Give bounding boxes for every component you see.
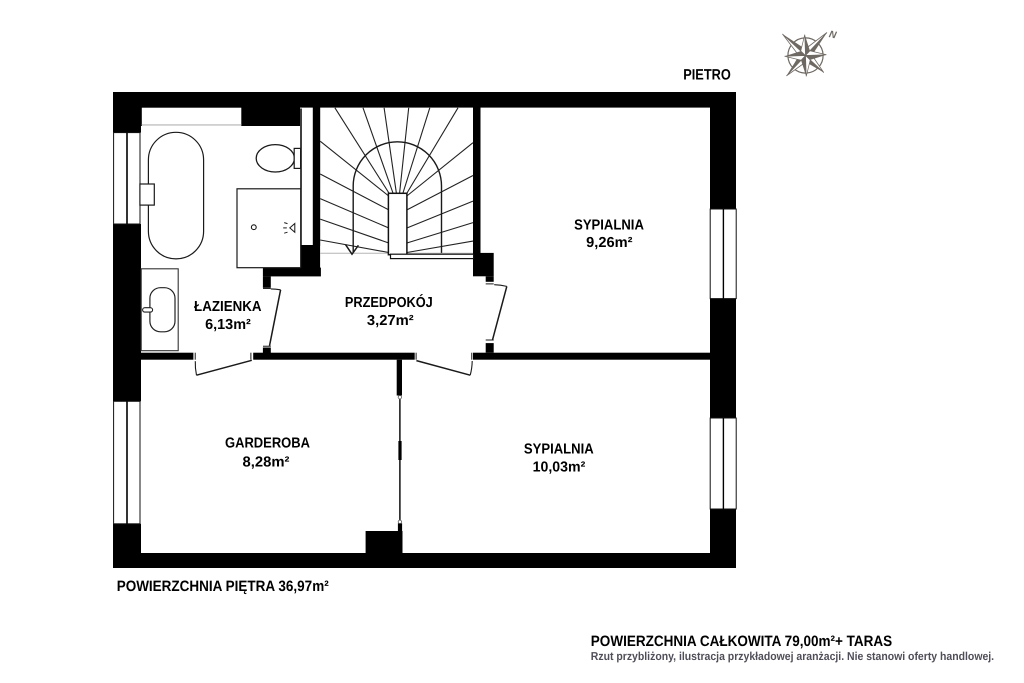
svg-text:8,28m²: 8,28m² <box>243 455 290 471</box>
svg-text:POWIERZCHNIA PIĘTRA 36,97m²: POWIERZCHNIA PIĘTRA 36,97m² <box>117 578 329 595</box>
svg-text:Rzut przybliżony, ilustracja p: Rzut przybliżony, ilustracja przykładowe… <box>591 651 994 663</box>
svg-text:PIETRO: PIETRO <box>683 67 731 84</box>
svg-text:POWIERZCHNIA CAŁKOWITA 79,00m²: POWIERZCHNIA CAŁKOWITA 79,00m²+ TARAS <box>591 633 892 650</box>
svg-text:N: N <box>828 29 838 41</box>
svg-text:9,26m²: 9,26m² <box>586 235 632 251</box>
svg-text:GARDEROBA: GARDEROBA <box>225 436 310 452</box>
svg-text:PRZEDPOKÓJ: PRZEDPOKÓJ <box>345 294 433 311</box>
svg-text:10,03m²: 10,03m² <box>533 460 586 476</box>
svg-text:6,13m²: 6,13m² <box>205 317 251 333</box>
svg-text:ŁAZIENKA: ŁAZIENKA <box>194 299 262 315</box>
svg-text:SYPIALNIA: SYPIALNIA <box>524 442 594 458</box>
svg-text:3,27m²: 3,27m² <box>367 313 414 329</box>
svg-text:SYPIALNIA: SYPIALNIA <box>574 218 644 234</box>
